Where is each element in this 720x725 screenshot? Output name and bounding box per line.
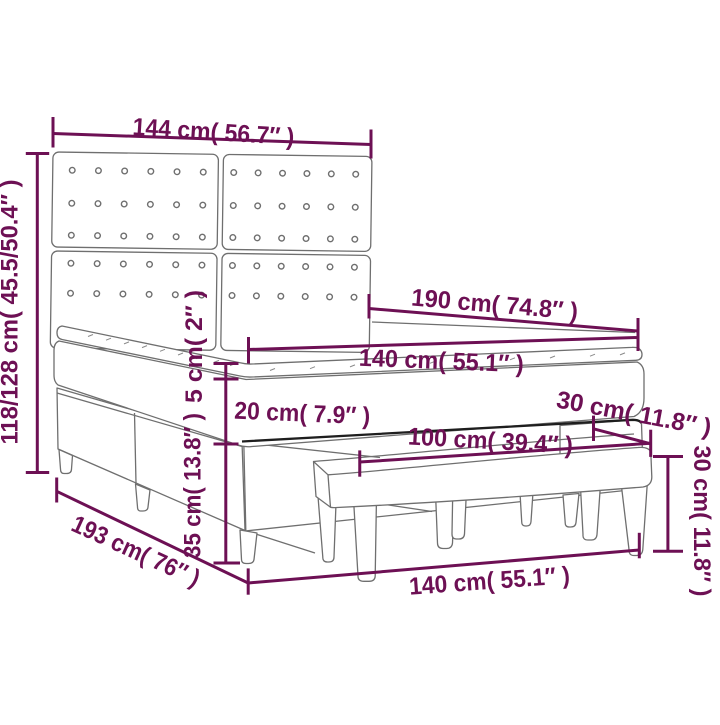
svg-text:30 cm( 11.8″ ): 30 cm( 11.8″ ) <box>688 446 715 597</box>
svg-text:118/128 cm( 45.5/50.4″ ): 118/128 cm( 45.5/50.4″ ) <box>0 180 24 445</box>
svg-text:35 cm( 13.8″ ): 35 cm( 13.8″ ) <box>180 413 207 558</box>
svg-text:5 cm( 2″ ): 5 cm( 2″ ) <box>181 290 208 403</box>
svg-text:20 cm( 7.9″ ): 20 cm( 7.9″ ) <box>234 398 371 431</box>
